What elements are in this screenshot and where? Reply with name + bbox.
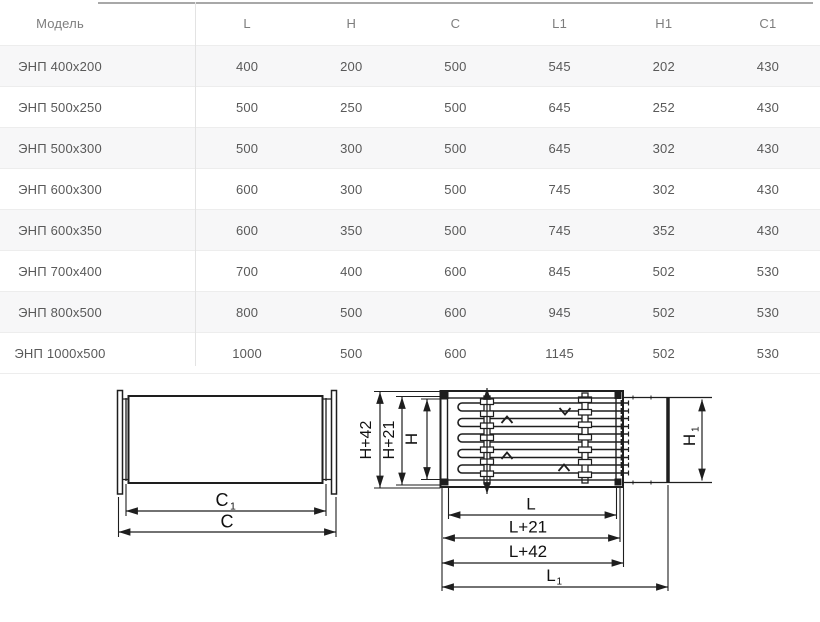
- cell-value: 430: [716, 141, 820, 156]
- cell-value: 500: [403, 141, 507, 156]
- cell-value: 500: [299, 305, 403, 320]
- flow-chevrons: [502, 408, 571, 471]
- cell-value: 202: [612, 59, 716, 74]
- cell-value: 645: [508, 141, 612, 156]
- cell-value: 500: [403, 223, 507, 238]
- dim-label-c: C: [221, 512, 234, 532]
- cell-value: 252: [612, 100, 716, 115]
- dim-label-l1-subscript: 1: [557, 577, 563, 588]
- cell-value: 600: [403, 346, 507, 361]
- cell-value: 430: [716, 223, 820, 238]
- dim-label-l1: L: [546, 566, 555, 585]
- cell-value: 400: [299, 264, 403, 279]
- cell-model: ЭНП 600x350: [0, 223, 195, 238]
- col-header-model: Модель: [0, 16, 195, 31]
- cell-value: 845: [508, 264, 612, 279]
- dim-label-l21: L+21: [509, 518, 547, 537]
- cell-value: 300: [299, 182, 403, 197]
- cell-value: 600: [403, 264, 507, 279]
- table-row: ЭНП 600x350 600 350 500 745 352 430: [0, 210, 820, 251]
- col-header-l: L: [195, 16, 299, 31]
- cell-value: 745: [508, 223, 612, 238]
- dimension-drawings: C 1 C: [0, 375, 820, 622]
- cell-value: 352: [612, 223, 716, 238]
- cell-model: ЭНП 500x300: [0, 141, 195, 156]
- cell-value: 600: [403, 305, 507, 320]
- cell-value: 500: [299, 346, 403, 361]
- cell-value: 302: [612, 141, 716, 156]
- cell-value: 500: [195, 100, 299, 115]
- table-row: ЭНП 700x400 700 400 600 845 502 530: [0, 251, 820, 292]
- frame-corner-cleats: [442, 392, 622, 486]
- table-row: ЭНП 1000x500 1000 500 600 1145 502 530: [0, 333, 820, 374]
- cell-value: 350: [299, 223, 403, 238]
- dim-label-h42: H+42: [358, 421, 375, 460]
- cell-model: ЭНП 600x300: [0, 182, 195, 197]
- cell-value: 500: [403, 59, 507, 74]
- cell-value: 800: [195, 305, 299, 320]
- cell-model: ЭНП 500x250: [0, 100, 195, 115]
- col-header-h1: H1: [612, 16, 716, 31]
- dim-label-c1: C: [216, 490, 229, 510]
- cell-value: 530: [716, 264, 820, 279]
- dim-label-l42: L+42: [509, 542, 547, 561]
- cell-value: 430: [716, 182, 820, 197]
- cell-value: 302: [612, 182, 716, 197]
- cell-model: ЭНП 1000x500: [0, 346, 195, 361]
- table-row: ЭНП 800x500 800 500 600 945 502 530: [0, 292, 820, 333]
- cell-value: 600: [195, 223, 299, 238]
- table-row: ЭНП 600x300 600 300 500 745 302 430: [0, 169, 820, 210]
- dim-label-h1-subscript: 1: [691, 426, 702, 432]
- col-header-c: C: [403, 16, 507, 31]
- cell-value: 600: [195, 182, 299, 197]
- col-header-c1: C1: [716, 16, 820, 31]
- cell-value: 430: [716, 100, 820, 115]
- dim-label-h1: H: [680, 434, 699, 446]
- cell-value: 1145: [508, 346, 612, 361]
- cell-value: 745: [508, 182, 612, 197]
- col-header-h: H: [299, 16, 403, 31]
- cell-value: 300: [299, 141, 403, 156]
- cell-value: 545: [508, 59, 612, 74]
- cell-value: 700: [195, 264, 299, 279]
- cell-model: ЭНП 700x400: [0, 264, 195, 279]
- cell-value: 645: [508, 100, 612, 115]
- table-header-row: Модель L H C L1 H1 C1: [0, 2, 820, 46]
- dim-label-h21: H+21: [381, 421, 398, 460]
- cell-value: 502: [612, 305, 716, 320]
- cell-model: ЭНП 800x500: [0, 305, 195, 320]
- cell-model: ЭНП 400x200: [0, 59, 195, 74]
- cell-value: 200: [299, 59, 403, 74]
- dim-label-h: H: [402, 433, 421, 445]
- support-bracket: [579, 393, 592, 483]
- cell-value: 500: [195, 141, 299, 156]
- cell-value: 430: [716, 59, 820, 74]
- table-column-divider: [195, 2, 196, 366]
- table-row: ЭНП 400x200 400 200 500 545 202 430: [0, 46, 820, 87]
- cell-value: 945: [508, 305, 612, 320]
- cell-value: 1000: [195, 346, 299, 361]
- dimensions-table: Модель L H C L1 H1 C1 ЭНП 400x200 400 20…: [0, 2, 820, 374]
- cell-value: 530: [716, 346, 820, 361]
- cell-value: 500: [403, 100, 507, 115]
- col-header-l1: L1: [508, 16, 612, 31]
- cell-value: 530: [716, 305, 820, 320]
- cell-value: 502: [612, 346, 716, 361]
- cell-value: 500: [403, 182, 507, 197]
- table-row: ЭНП 500x250 500 250 500 645 252 430: [0, 87, 820, 128]
- table-row: ЭНП 500x300 500 300 500 645 302 430: [0, 128, 820, 169]
- cell-value: 400: [195, 59, 299, 74]
- product-dimensions-page: Модель L H C L1 H1 C1 ЭНП 400x200 400 20…: [0, 0, 820, 622]
- cell-value: 502: [612, 264, 716, 279]
- cell-value: 250: [299, 100, 403, 115]
- dim-label-l: L: [526, 495, 535, 514]
